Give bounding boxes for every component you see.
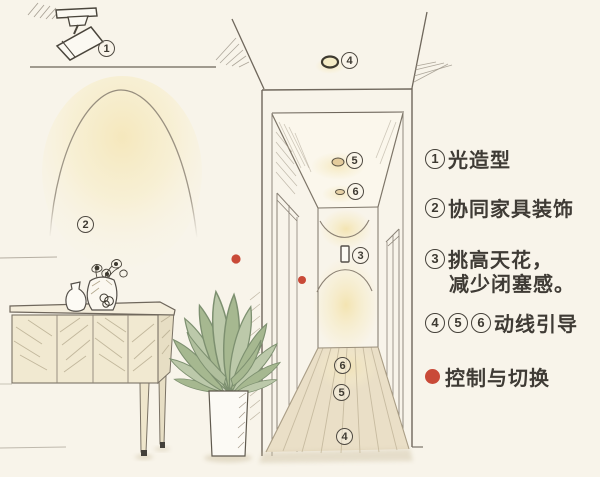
legend-text: 光造型 <box>448 144 511 173</box>
label-entry-ceiling-light: 4 <box>341 52 358 69</box>
table-leg-foot <box>141 450 147 456</box>
legend-item-control-switching: 控制与切换 <box>425 362 550 391</box>
planter-pot <box>209 391 248 456</box>
wall-wash-glow <box>42 76 202 268</box>
circled-number-5: 5 <box>448 313 468 333</box>
interior-lighting-diagram: 1 2 4 5 6 3 6 5 4 1 光造型 2 协同家具装饰 3 挑高天花，… <box>0 0 600 477</box>
circled-number-2: 2 <box>425 198 445 218</box>
label-floor-pool-far: 6 <box>334 357 351 374</box>
label-end-wall-sconce: 3 <box>352 247 369 264</box>
label-hall-downlight-upper: 5 <box>346 152 363 169</box>
table-leg-foot <box>160 442 165 448</box>
legend-item-light-shaping: 1 光造型 <box>425 144 511 173</box>
label-hall-downlight-lower: 6 <box>347 183 364 200</box>
downlight-icon <box>332 158 344 166</box>
ceiling-light-icon <box>322 57 338 68</box>
console-table <box>10 302 175 460</box>
control-point-dot <box>231 254 240 263</box>
pitcher-vase <box>66 282 86 311</box>
legend-text: 动线引导 <box>494 308 578 337</box>
legend-text: 控制与切换 <box>445 362 550 391</box>
legend-item-furniture-coordination: 2 协同家具装饰 <box>425 193 574 222</box>
hallway-ceiling <box>272 58 403 208</box>
control-point-dots <box>231 254 306 284</box>
circled-number-6: 6 <box>471 313 491 333</box>
sketch-illustration <box>0 0 600 477</box>
wall-sconce-icon <box>341 246 349 262</box>
circled-number-3: 3 <box>425 249 445 269</box>
label-floor-pool-near: 4 <box>336 428 353 445</box>
legend-item-circulation-guidance: 4 5 6 动线引导 <box>425 308 578 337</box>
potted-plant <box>167 291 282 463</box>
label-spotlight: 1 <box>98 40 115 57</box>
red-dot-icon <box>425 369 440 384</box>
circled-number-4: 4 <box>425 313 445 333</box>
label-floor-pool-mid: 5 <box>333 384 350 401</box>
legend-text: 协同家具装饰 <box>448 193 574 222</box>
circled-number-1: 1 <box>425 149 445 169</box>
label-wall-wash: 2 <box>77 216 94 233</box>
legend-item-raised-ceiling-line2: 减少闭塞感。 <box>449 268 575 297</box>
plant-leaves <box>167 291 282 398</box>
control-point-dot <box>298 276 306 284</box>
downlight-icon <box>336 190 345 195</box>
track-spotlight-icon <box>56 8 103 60</box>
hall-end-wall <box>313 207 379 353</box>
